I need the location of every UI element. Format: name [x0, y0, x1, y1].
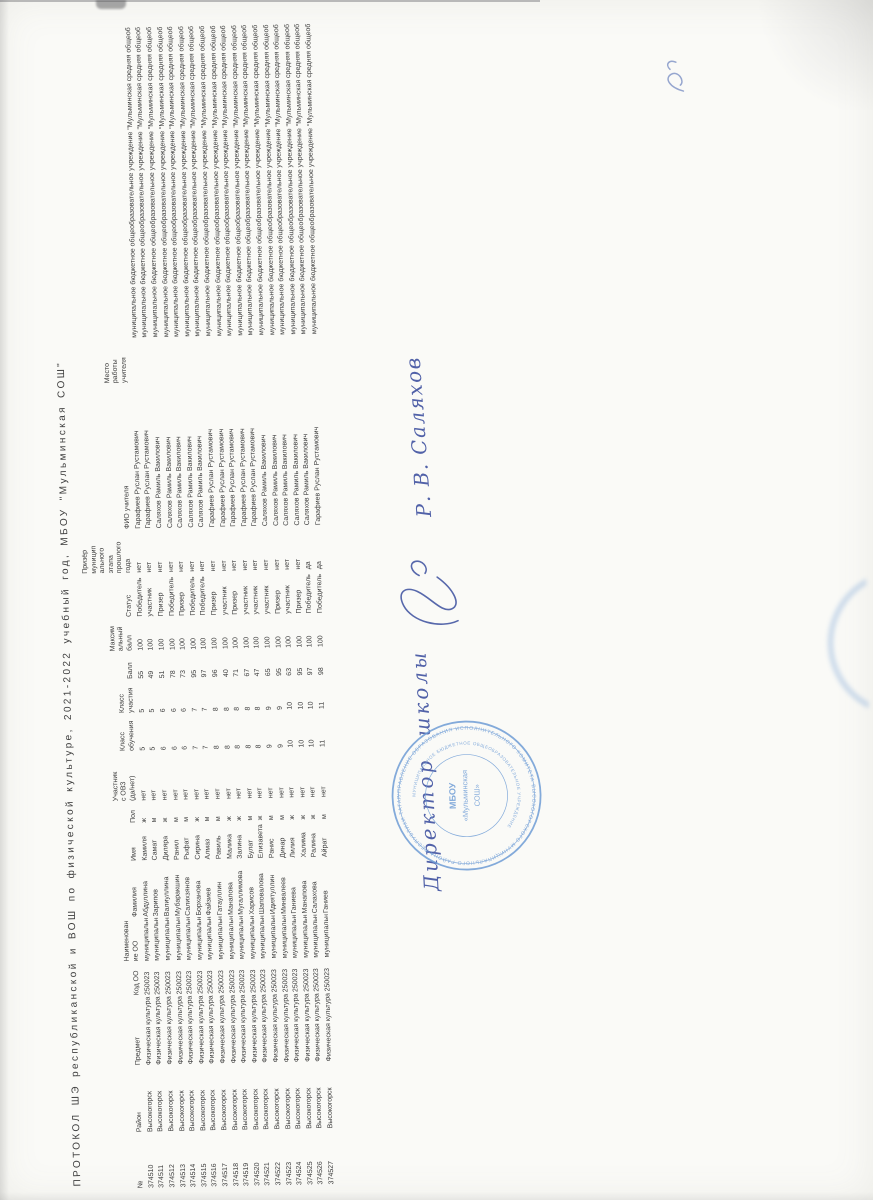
cell-grade_study: 11	[317, 709, 328, 747]
cell-score: 98	[316, 647, 327, 675]
cell-gender: ж	[309, 797, 320, 819]
cell-grade_part: 11	[317, 675, 328, 709]
cell-max_score: 100	[210, 615, 221, 649]
cell-gender: м	[245, 798, 256, 820]
cell-score: 73	[179, 650, 190, 678]
col-header-grade_part: Классучастия	[84, 679, 137, 714]
cell-max_score: 100	[220, 615, 231, 649]
svg-text:СОШ»: СОШ»	[472, 784, 481, 806]
cell-school_code: 250023	[227, 959, 238, 993]
cell-status: Победитель	[315, 569, 326, 613]
cell-max_score: 100	[273, 614, 284, 648]
col-header-school: Наименование ОО	[89, 917, 142, 962]
cell-school: муниципальн	[194, 915, 205, 960]
col-header-ovz: Участникс ОВЗ(да/нет)	[86, 751, 140, 802]
cell-teacher: Гарафиев Руслан Рустамович	[311, 379, 325, 525]
cell-max_score: 100	[135, 617, 146, 651]
signature-flourish-icon	[395, 553, 475, 637]
cell-subject: Физическая культура	[185, 994, 197, 1064]
cell-first_name: Лилия	[288, 820, 299, 858]
cell-gender: ж	[139, 801, 150, 823]
cell-school_code: 250023	[185, 960, 196, 994]
cell-num: 374527	[326, 1128, 338, 1184]
cell-grade_part: 9	[264, 676, 275, 710]
cell-max_score: 100	[263, 614, 274, 648]
cell-school: муниципальн	[290, 914, 301, 959]
cell-school_code: 250023	[269, 958, 280, 992]
cell-school: муниципальн	[322, 913, 333, 958]
col-header-num: №	[93, 1132, 147, 1189]
cell-grade_study: 9	[264, 710, 275, 748]
round-school-stamp: УПРАВЛЕНИЕ ОБРАЗОВАНИЯ ИСПОЛНИТЕЛЬНОГО К…	[387, 716, 546, 875]
cell-max_score: 100	[294, 613, 305, 647]
cell-grade_part: 8	[243, 676, 254, 710]
col-header-max_score: Максимальныйбалл	[83, 617, 136, 652]
cell-grade_study: 10	[307, 709, 318, 747]
cell-score: 63	[284, 648, 295, 676]
cell-school_code: 250023	[164, 960, 175, 994]
cell-grade_part: 6	[168, 678, 179, 712]
cell-max_score: 100	[146, 616, 157, 650]
cell-grade_part: 7	[190, 678, 201, 712]
cell-grade_part: 8	[232, 677, 243, 711]
cell-grade_study: 6	[169, 712, 180, 750]
cell-gender: м	[266, 798, 277, 820]
cell-grade_study: 10	[296, 709, 307, 747]
cell-school: муниципальн	[311, 913, 322, 958]
col-header-score: Балл	[84, 651, 137, 680]
cell-last_name: Ганиев	[320, 857, 332, 913]
col-header-last_name: Фамилия	[88, 861, 142, 918]
cell-grade_study: 6	[180, 712, 191, 750]
cell-gender: ж	[192, 799, 203, 821]
cell-status: Победитель	[304, 569, 315, 613]
col-header-gender: Пол	[87, 801, 140, 824]
cell-first_name: Булат	[246, 820, 257, 858]
cell-school_code: 250023	[153, 961, 164, 995]
cell-max_score: 100	[241, 614, 252, 648]
cell-score: 40	[221, 649, 232, 677]
rotated-sheet: ПРОТОКОЛ ШЭ республиканской и ВОШ по физ…	[0, 0, 873, 1200]
cell-first_name: Айрат	[320, 819, 331, 857]
cell-max_score: 100	[157, 616, 168, 650]
cell-first_name: Ранис	[267, 820, 278, 858]
cell-first_name: Рыфат	[182, 822, 193, 860]
cell-first_name: Камиля	[140, 823, 151, 861]
col-header-status: Статус	[82, 573, 135, 618]
cell-school_code: 250023	[280, 958, 291, 992]
cell-school: муниципальн	[237, 915, 248, 960]
cell-first_name: Халима	[298, 819, 309, 857]
cell-school: муниципальн	[184, 916, 195, 961]
cell-subject: Физическая культура	[270, 992, 282, 1062]
cell-first_name: Равиль	[214, 821, 225, 859]
cell-grade_study: 8	[233, 711, 244, 749]
cell-score: 47	[253, 648, 264, 676]
cell-subject: Физическая культура	[217, 993, 229, 1063]
cell-school_code: 250023	[206, 960, 217, 994]
document-title: ПРОТОКОЛ ШЭ республиканской и ВОШ по физ…	[56, 361, 84, 1187]
col-header-school_code: Код ОО	[90, 961, 143, 996]
cell-school: муниципальн	[247, 914, 258, 959]
cell-max_score: 100	[188, 616, 199, 650]
cell-grade_study: 8	[212, 711, 223, 749]
cell-ovz: нет	[318, 747, 330, 797]
cell-grade_study: 7	[190, 712, 201, 750]
cell-school_code: 250023	[301, 958, 312, 992]
cell-status: Победитель	[135, 573, 146, 617]
cell-grade_part: 10	[296, 675, 307, 709]
protocol-table: №РайонПредметКод ООНаименование ООФамили…	[71, 23, 338, 1190]
cell-score: 97	[306, 647, 317, 675]
cell-max_score: 100	[178, 616, 189, 650]
cell-grade_study: 8	[254, 710, 265, 748]
col-header-workplace: Местоработыучителя	[71, 26, 131, 384]
cell-first_name: Алмаз	[203, 821, 214, 859]
cell-school_code: 250023	[217, 959, 228, 993]
cell-score: 97	[200, 649, 211, 677]
cell-school: муниципальн	[152, 916, 163, 961]
cell-first_name: Елизавета	[256, 820, 267, 858]
cell-grade_study: 6	[159, 712, 170, 750]
stamp-bleed-mark	[821, 569, 869, 720]
cell-gender: м	[171, 800, 182, 822]
cell-grade_part: 10	[306, 675, 317, 709]
cell-gender: ж	[234, 799, 245, 821]
cell-score: 65	[263, 648, 274, 676]
cell-district: Высокогорск	[325, 1061, 337, 1128]
cell-score: 96	[210, 649, 221, 677]
cell-school_code: 250023	[291, 958, 302, 992]
cell-grade_part: 5	[137, 679, 148, 713]
cell-grade_part: 10	[285, 676, 296, 710]
cell-first_name: Малика	[224, 821, 235, 859]
cell-status: Победитель	[166, 572, 177, 616]
cell-school_code: 250023	[312, 957, 323, 991]
cell-status: Победитель	[198, 571, 209, 615]
col-header-prev_winner: Призёрмуниципальногоэтапапрошлогогода	[81, 529, 134, 574]
cell-first_name: Ралина	[309, 819, 320, 857]
cell-max_score: 100	[199, 615, 210, 649]
col-header-grade_study: Классобучения	[85, 713, 138, 752]
cell-subject: Физическая культура	[238, 993, 250, 1063]
cell-subject: Физическая культура	[291, 992, 303, 1062]
cell-score: 78	[168, 650, 179, 678]
cell-school: муниципальн	[163, 916, 174, 961]
cell-grade_part: 5	[147, 678, 158, 712]
cell-prev_winner: да	[314, 525, 325, 569]
cell-subject: Физическая культура	[323, 991, 335, 1061]
signature-name-text: Р. В. Саляхов	[401, 356, 437, 519]
col-header-teacher: ФИО учителя	[78, 383, 133, 530]
col-header-subject: Предмет	[90, 995, 144, 1066]
cell-school_code: 250023	[195, 960, 206, 994]
cell-score: 67	[242, 648, 253, 676]
cell-school: муниципальн	[258, 914, 269, 959]
cell-school: муниципальн	[216, 915, 227, 960]
cell-max_score: 100	[316, 613, 327, 647]
cell-school_code: 250023	[248, 959, 259, 993]
cell-gender: ж	[160, 800, 171, 822]
cell-score: 95	[189, 650, 200, 678]
cell-school_code: 250023	[174, 960, 185, 994]
svg-text:«Мульминская: «Мульминская	[460, 770, 470, 821]
cell-score: 49	[147, 650, 158, 678]
ink-scribble-mark	[661, 56, 692, 97]
cell-first_name: Сирина	[193, 821, 204, 859]
cell-score: 55	[136, 651, 147, 679]
cell-max_score: 100	[305, 613, 316, 647]
cell-grade_part: 8	[211, 677, 222, 711]
cell-gender: м	[319, 797, 330, 819]
cell-gender: ж	[224, 799, 235, 821]
cell-max_score: 100	[231, 615, 242, 649]
cell-score: 71	[231, 649, 242, 677]
cell-grade_study: 8	[243, 710, 254, 748]
cell-first_name: Динар	[277, 820, 288, 858]
cell-max_score: 100	[252, 614, 263, 648]
cell-school_code: 250023	[322, 957, 333, 991]
cell-max_score: 100	[284, 614, 295, 648]
cell-gender: м	[150, 800, 161, 822]
cell-grade_study: 7	[201, 711, 212, 749]
col-header-first_name: Имя	[87, 823, 140, 862]
cell-school_code: 250023	[142, 961, 153, 995]
cell-status: Победитель	[188, 572, 199, 616]
cell-gender: м	[213, 799, 224, 821]
cell-gender: ж	[256, 798, 267, 820]
cell-first_name: Самат	[150, 822, 161, 860]
cell-grade_part: 7	[200, 677, 211, 711]
cell-school: муниципальн	[141, 917, 152, 962]
cell-school: муниципальн	[300, 913, 311, 958]
cell-max_score: 100	[167, 616, 178, 650]
cell-gender: м	[277, 798, 288, 820]
cell-first_name: Диляра	[161, 822, 172, 860]
cell-school: муниципальн	[205, 915, 216, 960]
cell-school: муниципальн	[226, 915, 237, 960]
sheet-content: ПРОТОКОЛ ШЭ республиканской и ВОШ по физ…	[0, 0, 873, 1200]
cell-grade_study: 9	[275, 710, 286, 748]
cell-gender: ж	[298, 797, 309, 819]
cell-subject: Физическая культура	[164, 994, 176, 1064]
cell-school_code: 250023	[259, 959, 270, 993]
cell-grade_part: 9	[274, 676, 285, 710]
cell-grade_study: 5	[148, 712, 159, 750]
cell-score: 95	[295, 647, 306, 675]
cell-first_name: Ранил	[171, 822, 182, 860]
cell-grade_study: 10	[286, 710, 297, 748]
col-header-district: Район	[92, 1065, 146, 1133]
cell-school: муниципальн	[173, 916, 184, 961]
cell-grade_part: 6	[179, 678, 190, 712]
cell-score: 95	[274, 648, 285, 676]
cell-school: муниципальн	[269, 914, 280, 959]
cell-gender: ж	[287, 798, 298, 820]
cell-grade_part: 8	[221, 677, 232, 711]
cell-grade_part: 6	[158, 678, 169, 712]
cell-school_code: 250023	[238, 959, 249, 993]
cell-gender: м	[203, 799, 214, 821]
cell-grade_study: 5	[137, 713, 148, 751]
scanned-protocol-page: ПРОТОКОЛ ШЭ республиканской и ВОШ по физ…	[0, 0, 873, 1200]
cell-gender: м	[182, 800, 193, 822]
cell-grade_study: 8	[222, 711, 233, 749]
cell-grade_part: 8	[253, 676, 264, 710]
cell-school: муниципальн	[279, 914, 290, 959]
cell-first_name: Залина	[235, 821, 246, 859]
svg-text:МБОУ: МБОУ	[447, 782, 458, 809]
cell-score: 51	[157, 650, 168, 678]
